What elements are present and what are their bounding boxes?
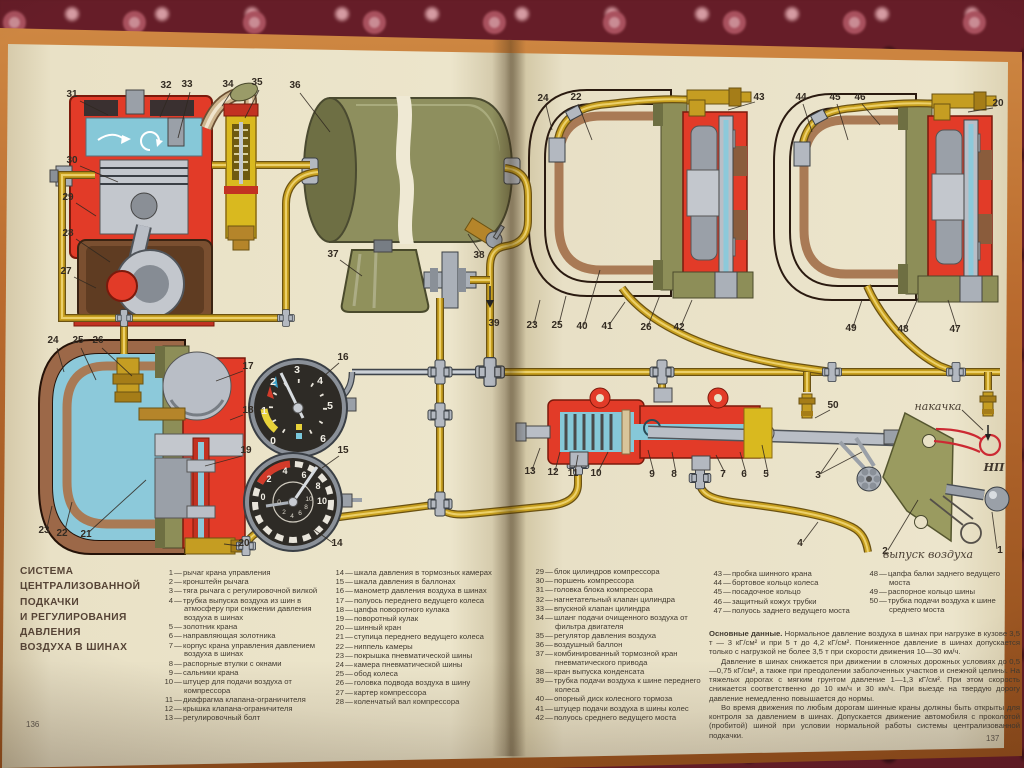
svg-text:22: 22 xyxy=(570,92,582,103)
right-page-number: 137 xyxy=(986,734,999,743)
svg-text:15: 15 xyxy=(337,445,349,456)
svg-text:6: 6 xyxy=(741,469,747,480)
svg-text:0: 0 xyxy=(277,499,281,506)
control-valve-cutaway xyxy=(516,388,904,470)
pipe-fittings xyxy=(116,310,966,556)
condensate-valve xyxy=(464,210,509,250)
control-lever xyxy=(857,413,1009,543)
svg-text:35: 35 xyxy=(251,77,263,88)
tire-valve-fittings xyxy=(799,392,996,425)
compressor-cutaway xyxy=(50,90,214,326)
svg-text:40: 40 xyxy=(576,321,588,332)
legend-item: 34—шланг подачи очищенного воздуха от фи… xyxy=(531,614,715,631)
legend-item: 10—штуцер для подачи воздуха от компресс… xyxy=(160,678,332,695)
svg-text:9: 9 xyxy=(649,469,655,480)
svg-text:31: 31 xyxy=(66,89,78,100)
legend-item: 48—цапфа балки заднего ведущего моста xyxy=(865,570,1021,587)
rear-axle-wheel-cutaway xyxy=(774,92,998,302)
svg-text:43: 43 xyxy=(753,92,765,103)
svg-text:0: 0 xyxy=(270,435,276,447)
label-inflate: накачка xyxy=(915,400,962,413)
svg-text:19: 19 xyxy=(240,445,252,456)
svg-text:3: 3 xyxy=(294,364,300,376)
svg-text:7: 7 xyxy=(720,469,726,480)
photo-background: 0123456 0246810 0246810 xyxy=(0,0,1024,768)
label-neutral: НП xyxy=(983,461,1005,474)
svg-text:24: 24 xyxy=(47,335,59,346)
svg-text:20: 20 xyxy=(992,98,1004,109)
legend-item: 42—полуось среднего ведущего моста xyxy=(531,714,715,723)
svg-text:22: 22 xyxy=(56,528,68,539)
svg-text:45: 45 xyxy=(829,92,841,103)
svg-text:11: 11 xyxy=(568,468,579,479)
svg-text:17: 17 xyxy=(242,361,254,372)
tire-pressure-gauge: 0123456 xyxy=(249,359,356,457)
svg-text:49: 49 xyxy=(845,323,857,334)
svg-text:1: 1 xyxy=(997,545,1003,556)
legend-item: 13—регулировочный болт xyxy=(160,714,332,723)
page-title: СИСТЕМАЦЕНТРАЛИЗОВАННОЙПОДКАЧКИИ РЕГУЛИР… xyxy=(20,564,170,656)
svg-text:39: 39 xyxy=(488,318,500,329)
callout-numbers: 3130292827323334353637383924252617181923… xyxy=(38,77,1004,557)
svg-text:8: 8 xyxy=(304,504,308,511)
svg-text:28: 28 xyxy=(62,228,74,239)
svg-text:24: 24 xyxy=(537,93,549,104)
main-data-lead: Основные данные. xyxy=(709,629,782,638)
svg-text:42: 42 xyxy=(673,322,685,333)
svg-text:14: 14 xyxy=(331,538,343,549)
svg-text:2: 2 xyxy=(882,546,888,557)
svg-text:2: 2 xyxy=(266,474,271,484)
legend-item: 28—коленчатый вал компрессора xyxy=(331,698,519,707)
svg-text:33: 33 xyxy=(181,79,193,90)
svg-text:18: 18 xyxy=(242,405,254,416)
air-pipes xyxy=(62,165,1000,552)
svg-text:41: 41 xyxy=(601,321,613,332)
svg-text:38: 38 xyxy=(473,250,485,261)
svg-text:36: 36 xyxy=(289,80,301,91)
svg-text:4: 4 xyxy=(317,375,323,387)
legend-column-1: 1—рычаг крана управления2—кронштейн рыча… xyxy=(160,569,332,723)
svg-text:0: 0 xyxy=(260,492,265,502)
svg-text:32: 32 xyxy=(160,80,172,91)
svg-text:50: 50 xyxy=(827,400,839,411)
svg-text:20: 20 xyxy=(238,538,250,549)
svg-text:6: 6 xyxy=(298,510,302,517)
main-data-text: Основные данные. Нормальное давление воз… xyxy=(709,629,1020,740)
svg-text:6: 6 xyxy=(320,433,326,445)
legend-item: 37—комбинированный тормозной кран пневма… xyxy=(531,650,715,667)
steel-tube xyxy=(338,372,492,500)
front-wheel-cutaway xyxy=(39,340,245,554)
svg-text:26: 26 xyxy=(92,335,104,346)
air-intake-hose xyxy=(206,80,260,128)
svg-text:10: 10 xyxy=(317,496,327,506)
book-spread: 0123456 0246810 0246810 xyxy=(0,0,1024,768)
svg-text:8: 8 xyxy=(315,481,320,491)
svg-text:4: 4 xyxy=(797,538,803,549)
svg-text:8: 8 xyxy=(671,469,677,480)
svg-text:23: 23 xyxy=(526,320,538,331)
legend-column-2: 14—шкала давления в тормозных камерах15—… xyxy=(331,569,519,707)
svg-text:48: 48 xyxy=(897,324,909,335)
svg-text:21: 21 xyxy=(80,529,92,540)
svg-text:46: 46 xyxy=(854,92,866,103)
brake-valve xyxy=(342,240,476,312)
legend-item: 50—трубка подачи воздуха к шине среднего… xyxy=(865,597,1021,614)
dual-pressure-gauge: 0246810 0246810 xyxy=(244,453,352,551)
svg-text:44: 44 xyxy=(795,92,807,103)
svg-text:5: 5 xyxy=(763,469,769,480)
flow-arrow xyxy=(486,286,494,308)
svg-text:30: 30 xyxy=(66,155,78,166)
svg-text:4: 4 xyxy=(282,466,287,476)
svg-text:23: 23 xyxy=(38,525,50,536)
svg-text:1: 1 xyxy=(261,405,267,417)
svg-text:34: 34 xyxy=(222,79,234,90)
left-page-number: 136 xyxy=(26,720,39,729)
svg-text:37: 37 xyxy=(327,249,339,260)
legend-item: 4—трубка выпуска воздуха из шин в атмосф… xyxy=(160,597,332,623)
svg-text:2: 2 xyxy=(282,509,286,516)
svg-text:25: 25 xyxy=(551,320,563,331)
svg-text:4: 4 xyxy=(290,513,294,520)
legend-item: 7—корпус крана управления давлением возд… xyxy=(160,642,332,659)
svg-text:13: 13 xyxy=(524,466,536,477)
pressure-regulator xyxy=(224,104,258,250)
svg-text:3: 3 xyxy=(815,470,821,481)
svg-text:27: 27 xyxy=(60,266,72,277)
middle-axle-wheel-cutaway xyxy=(529,88,753,298)
svg-text:25: 25 xyxy=(72,335,84,346)
svg-text:10: 10 xyxy=(590,468,602,479)
legend-column-5: 48—цапфа балки заднего ведущего моста49—… xyxy=(865,570,1021,615)
label-release: выпуск воздуха xyxy=(883,548,973,561)
svg-text:12: 12 xyxy=(547,467,559,478)
legend-item: 39—трубка подачи воздуха к шине переднег… xyxy=(531,677,715,694)
callout-leader-lines xyxy=(47,90,997,550)
svg-text:2: 2 xyxy=(270,376,276,388)
svg-text:26: 26 xyxy=(640,322,652,333)
legend-column-3: 29—блок цилиндров компрессора30—поршень … xyxy=(531,568,715,723)
svg-text:5: 5 xyxy=(327,400,333,412)
svg-text:16: 16 xyxy=(337,352,349,363)
svg-text:6: 6 xyxy=(301,470,306,480)
svg-text:10: 10 xyxy=(305,496,313,503)
svg-text:47: 47 xyxy=(949,324,961,335)
air-tank xyxy=(302,96,520,251)
svg-text:29: 29 xyxy=(62,192,74,203)
